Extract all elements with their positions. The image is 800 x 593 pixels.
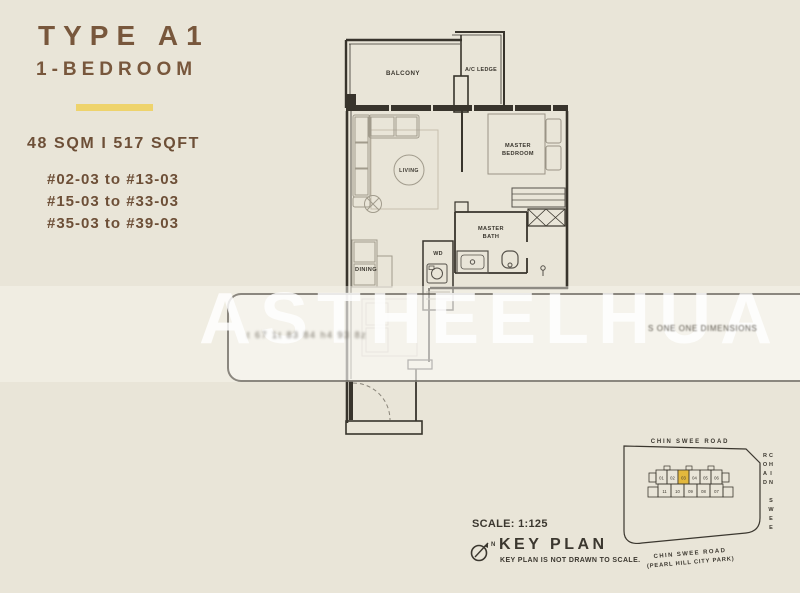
unit-number-04: 04 xyxy=(692,476,697,481)
wd-label: WD xyxy=(433,251,443,257)
master-bedroom-label-2: BEDROOM xyxy=(502,151,534,157)
master-bath-label-2: BATH xyxy=(483,234,500,240)
unit-number-02: 02 xyxy=(670,476,675,481)
ac-ledge-label: A/C LEDGE xyxy=(465,67,497,73)
unit-number-01: 01 xyxy=(659,476,664,481)
pillow-icon xyxy=(546,146,561,170)
sink-vanity-icon xyxy=(457,251,488,273)
sofa-icon xyxy=(353,115,370,197)
living-label: LIVING xyxy=(399,168,419,174)
toilet-icon xyxy=(502,251,518,268)
unit-number-07: 07 xyxy=(714,489,719,494)
flyer-page: { "info": { "type_title": "TYPE A1", "su… xyxy=(0,0,800,593)
door-stop-icon xyxy=(541,266,545,270)
key-plan-map: CHIN SWEE ROAD CHIN SWEE ROAD (PEARL HIL… xyxy=(612,434,787,579)
master-bath-label-1: MASTER xyxy=(478,226,504,232)
door-swing-arc xyxy=(353,383,390,420)
unit-number-03: 03 xyxy=(681,476,686,481)
north-letter: N xyxy=(491,542,495,548)
road-label-top: CHIN SWEE ROAD xyxy=(651,439,730,445)
unit-number-10: 10 xyxy=(675,489,680,494)
north-compass-icon: N xyxy=(468,538,498,564)
dining-label: DINING xyxy=(355,267,377,273)
unit-number-05: 05 xyxy=(703,476,708,481)
balcony-label: BALCONY xyxy=(386,70,420,77)
watermark-stamp-right: S ONE ONE DIMENSIONS xyxy=(648,324,757,333)
pillow-icon xyxy=(546,119,561,143)
watermark-stamp-left: t 67 1t 83 84 h4 93 8z xyxy=(247,330,367,340)
column xyxy=(346,94,356,106)
master-bedroom-label-1: MASTER xyxy=(505,143,531,149)
watermark-text: ASTHEELHUA xyxy=(199,283,781,355)
entry-door-leaf xyxy=(349,381,353,420)
unit-number-06: 06 xyxy=(714,476,719,481)
unit-number-11: 11 xyxy=(662,489,667,494)
unit-number-08: 08 xyxy=(701,489,706,494)
unit-number-09: 09 xyxy=(688,489,693,494)
site-boundary xyxy=(624,446,760,543)
